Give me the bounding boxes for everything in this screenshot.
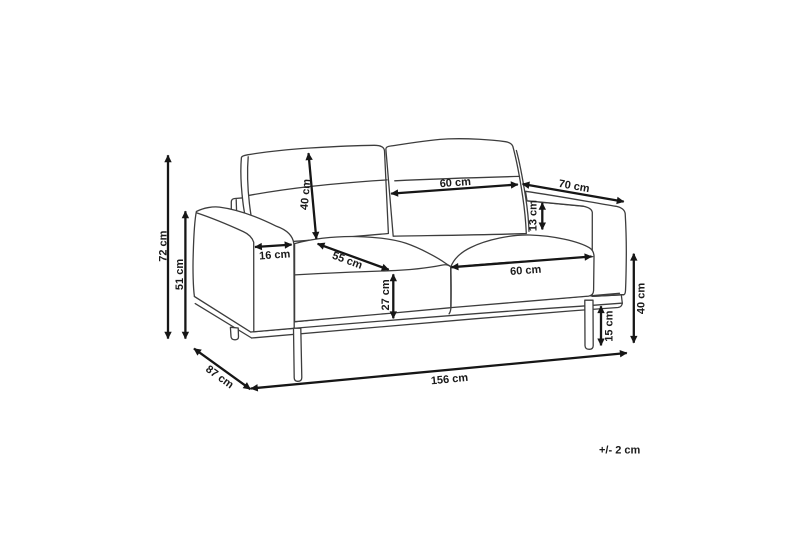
- svg-text:40 cm: 40 cm: [636, 283, 648, 314]
- svg-text:13 cm: 13 cm: [528, 200, 540, 231]
- svg-text:+/- 2 cm: +/- 2 cm: [599, 444, 640, 456]
- svg-text:70 cm: 70 cm: [558, 178, 591, 195]
- svg-text:60 cm: 60 cm: [510, 264, 542, 278]
- svg-text:27 cm: 27 cm: [380, 279, 392, 310]
- svg-text:16 cm: 16 cm: [259, 248, 291, 262]
- svg-text:72 cm: 72 cm: [157, 230, 169, 261]
- svg-text:15 cm: 15 cm: [604, 310, 616, 341]
- svg-text:51 cm: 51 cm: [174, 259, 186, 290]
- svg-text:60 cm: 60 cm: [439, 176, 471, 190]
- svg-text:156 cm: 156 cm: [430, 372, 468, 387]
